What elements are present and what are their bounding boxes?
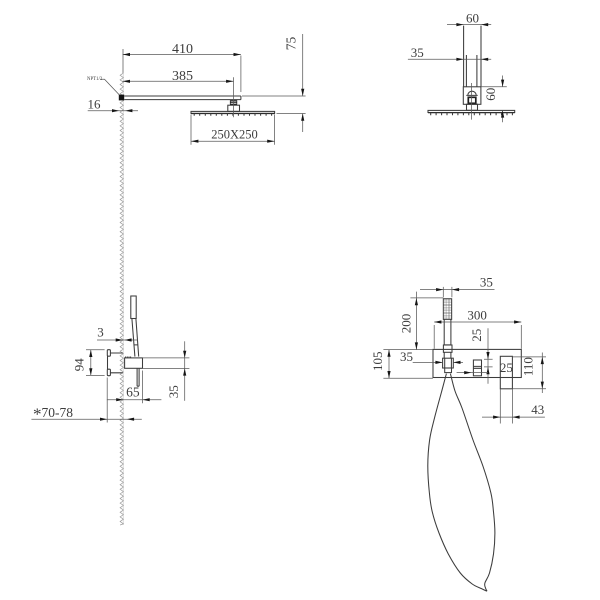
svg-text:3: 3 <box>97 325 104 340</box>
svg-text:65: 65 <box>126 385 140 400</box>
svg-text:35: 35 <box>166 385 181 398</box>
svg-text:43: 43 <box>531 402 544 417</box>
svg-text:75: 75 <box>283 37 298 51</box>
svg-text:250X250: 250X250 <box>211 128 258 142</box>
svg-text:300: 300 <box>467 308 487 323</box>
svg-text:200: 200 <box>398 314 413 334</box>
svg-text:25: 25 <box>500 360 513 375</box>
svg-text:60: 60 <box>466 11 479 26</box>
svg-text:94: 94 <box>72 358 87 372</box>
svg-text:16: 16 <box>88 97 102 112</box>
svg-text:385: 385 <box>172 69 193 84</box>
svg-text:110: 110 <box>521 357 536 376</box>
svg-text:35: 35 <box>411 45 424 60</box>
svg-text:NPT1/2: NPT1/2 <box>87 77 103 82</box>
svg-text:105: 105 <box>370 351 385 371</box>
svg-text:35: 35 <box>400 349 413 364</box>
svg-text:35: 35 <box>480 274 493 289</box>
svg-text:60: 60 <box>483 88 498 101</box>
svg-text:25: 25 <box>469 329 484 342</box>
